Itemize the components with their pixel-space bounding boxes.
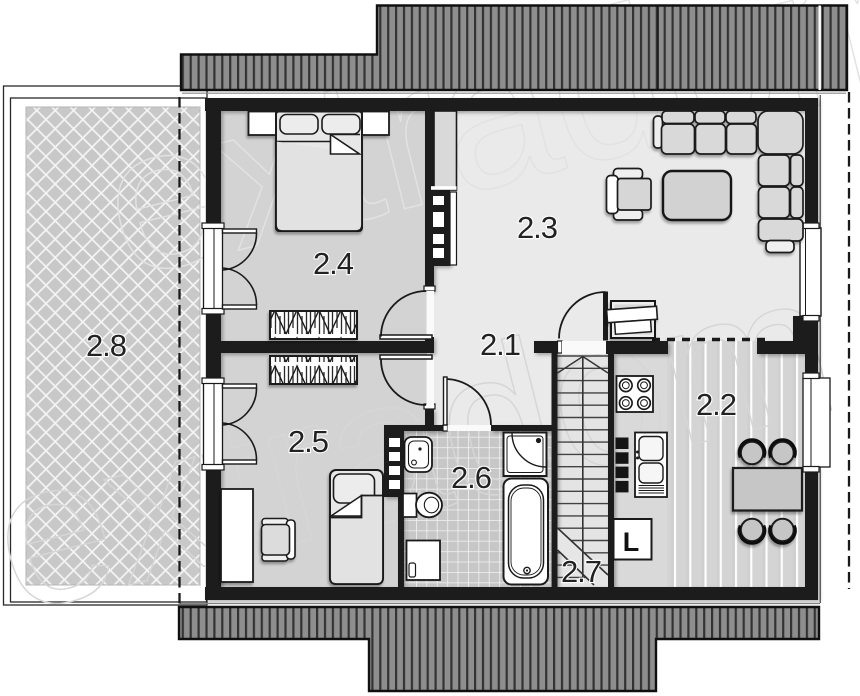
svg-text:L: L <box>623 527 640 557</box>
svg-text:2.7: 2.7 <box>561 554 601 589</box>
svg-text:2.1: 2.1 <box>480 327 520 362</box>
svg-text:2.3: 2.3 <box>517 210 557 245</box>
svg-text:2.2: 2.2 <box>696 387 736 422</box>
svg-text:2.6: 2.6 <box>451 460 491 495</box>
svg-text:2.4: 2.4 <box>313 246 354 281</box>
svg-text:2.8: 2.8 <box>86 328 126 363</box>
svg-text:2.5: 2.5 <box>288 424 328 459</box>
